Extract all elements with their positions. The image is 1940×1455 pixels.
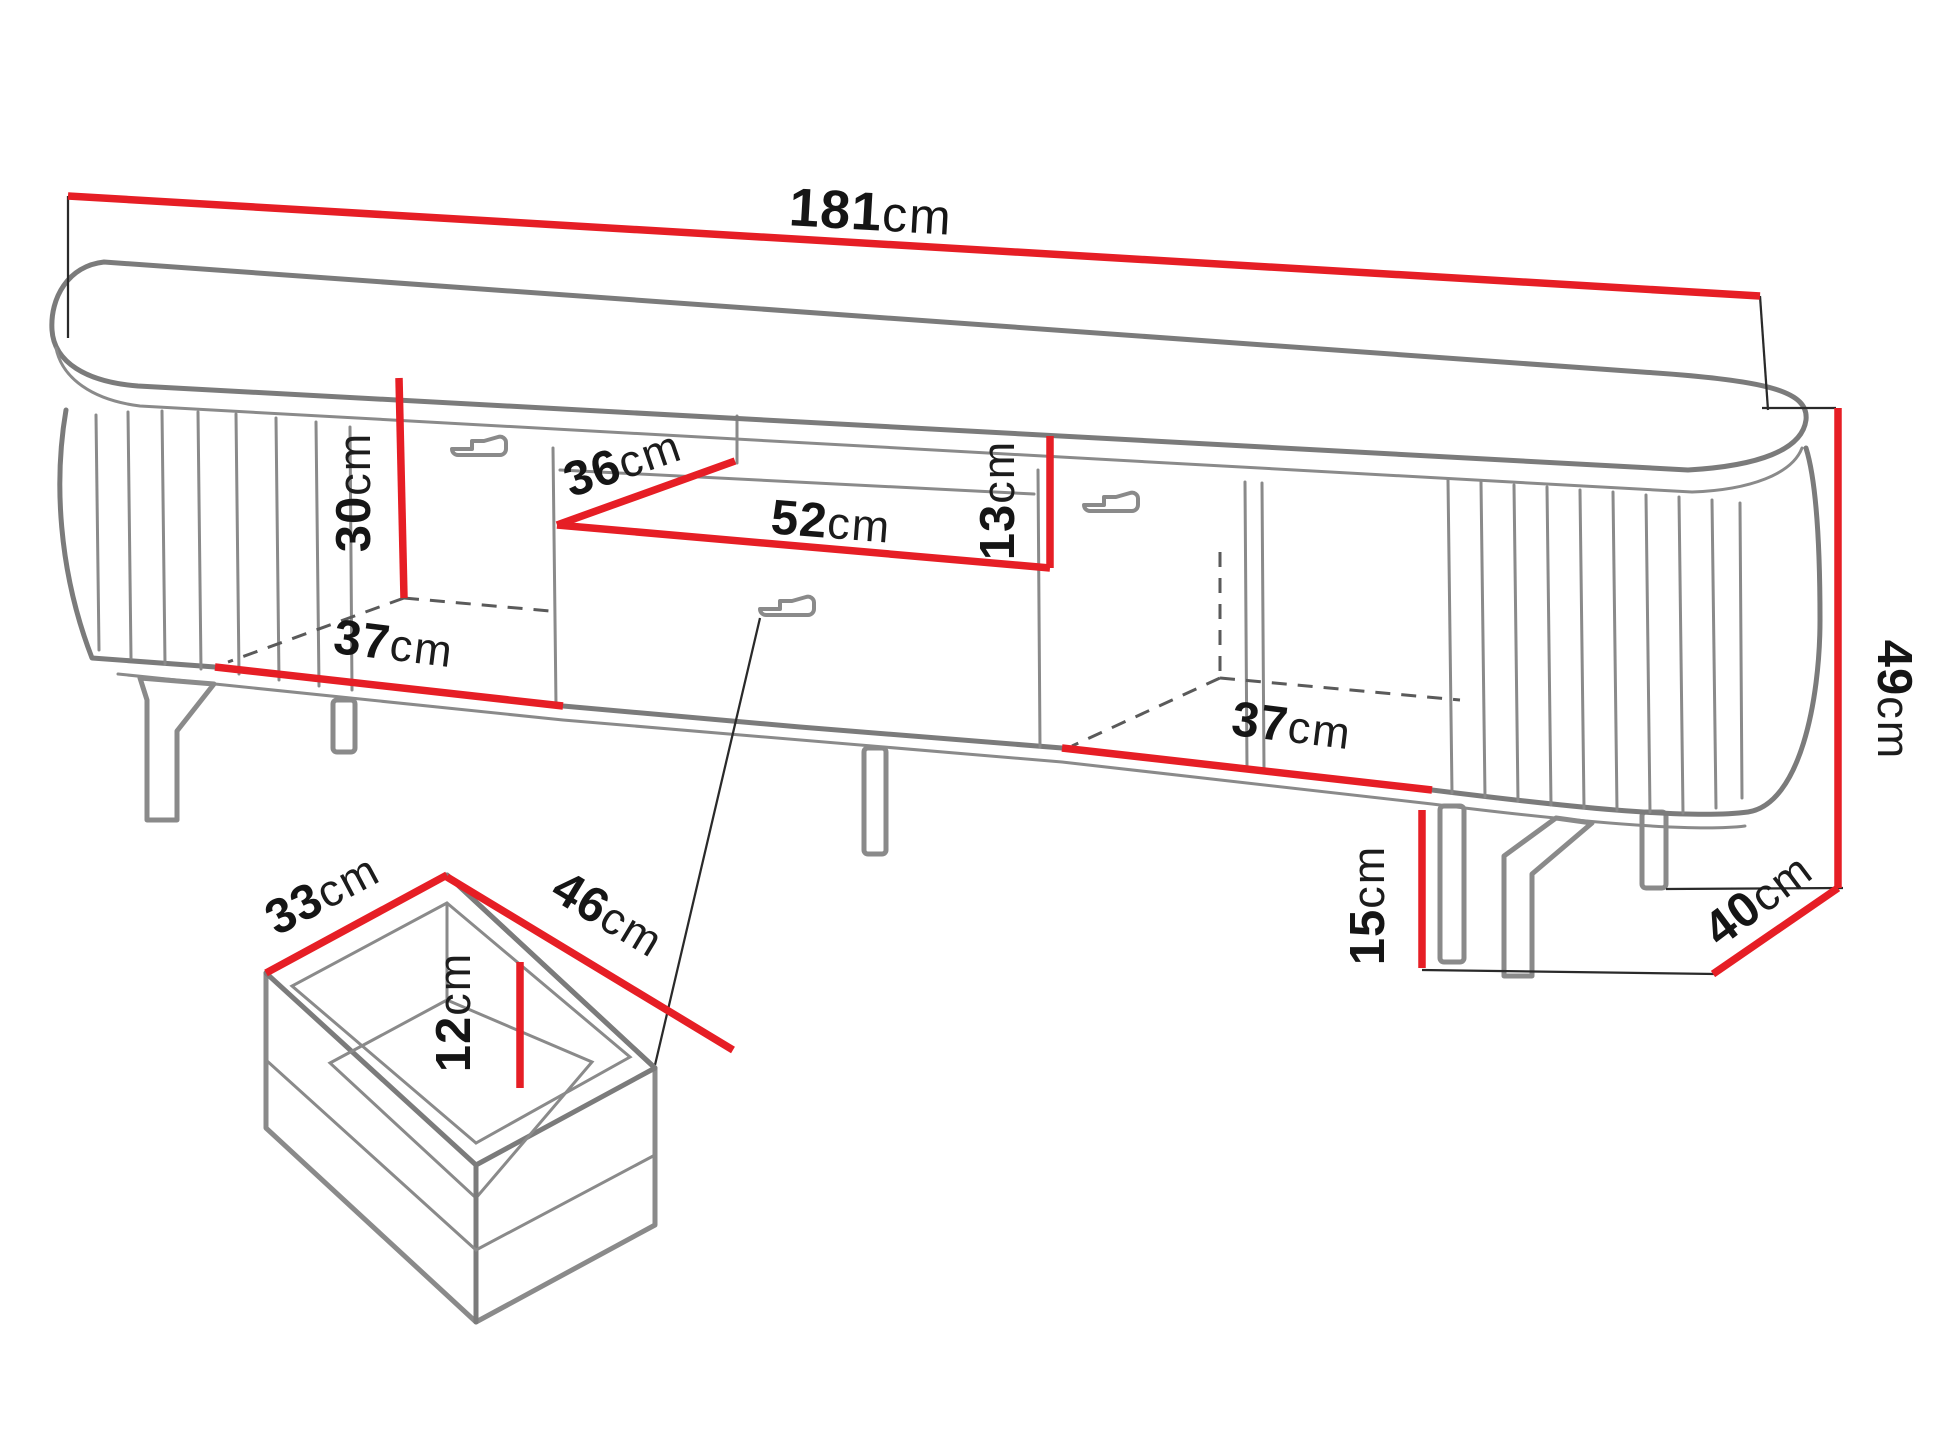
leg-left-angled: [140, 678, 214, 820]
cabinet-body-outline: [60, 410, 1820, 814]
fluting-left-cap: [96, 411, 352, 690]
front-dividers: [553, 448, 1264, 770]
leg-left-straight: [333, 700, 355, 752]
leg-right-back: [1642, 812, 1666, 888]
cabinet-bottom-edge-line: [118, 674, 1745, 828]
label-niche-height-13: 13cm: [971, 440, 1025, 561]
label-leg-height-15: 15cm: [1341, 845, 1395, 966]
drawer-leader-line: [655, 618, 760, 1065]
label-drawer-height-12: 12cm: [427, 952, 481, 1073]
tv-stand-dimension-diagram: 181cm 30cm 36cm 52cm 13cm 37cm 37cm 49cm…: [0, 0, 1940, 1455]
leg-right-front: [1440, 806, 1464, 962]
drawer-handle-icon: [760, 597, 814, 615]
label-width-181: 181cm: [788, 177, 955, 247]
right-door-handle-icon: [1084, 493, 1138, 511]
leg-middle-straight: [864, 748, 886, 854]
label-left-width-37: 37cm: [331, 610, 457, 678]
label-left-height-30: 30cm: [327, 432, 381, 553]
dim-line-left-width-37: [215, 667, 563, 706]
diagram-canvas: 181cm 30cm 36cm 52cm 13cm 37cm 37cm 49cm…: [0, 0, 1940, 1455]
label-total-height-49: 49cm: [1867, 640, 1921, 761]
left-door-handle-icon: [452, 437, 506, 455]
dim-line-left-height-30: [399, 378, 404, 598]
label-niche-width-52: 52cm: [769, 490, 893, 553]
leg-right-angled: [1504, 818, 1592, 976]
fluting-right-cap: [1448, 480, 1742, 813]
extension-lines: [68, 196, 1843, 974]
label-drawer-width-46: 46cm: [543, 860, 674, 968]
